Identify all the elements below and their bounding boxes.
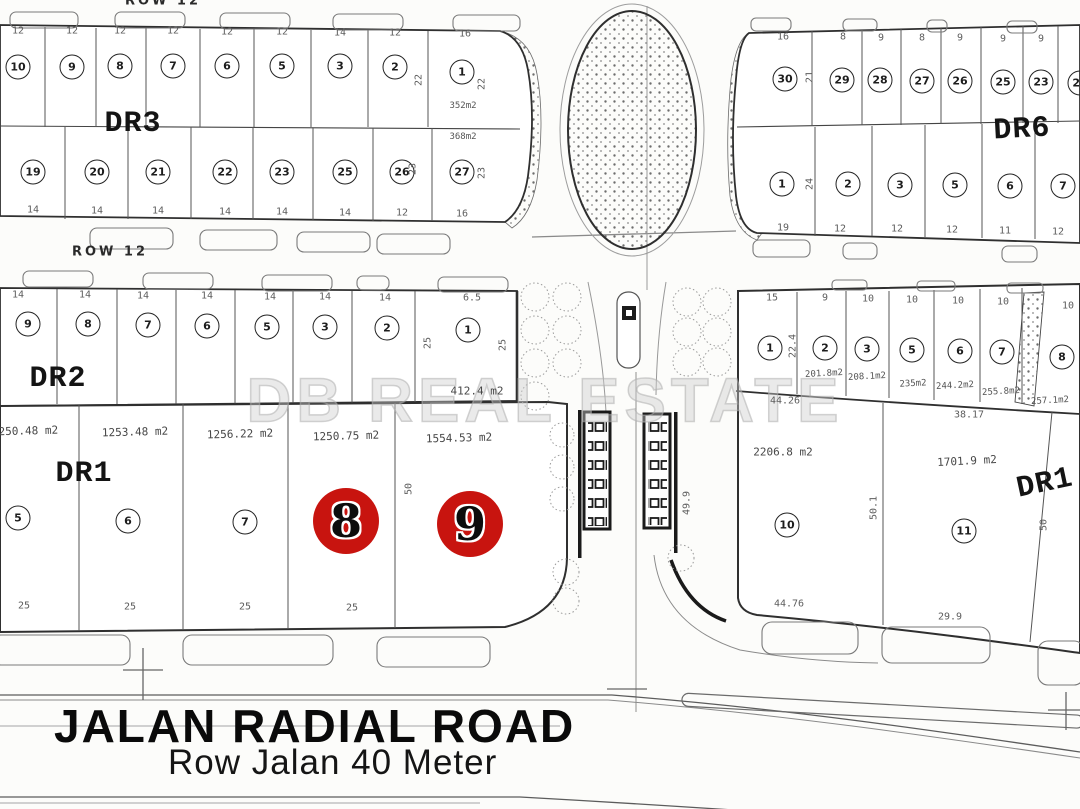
plot-number: 3 — [855, 337, 880, 362]
dimension: 14 — [334, 28, 346, 39]
dimension: 12 — [396, 208, 408, 219]
dimension: 8 — [840, 32, 846, 43]
dimension: 10 — [952, 296, 964, 307]
plot-number: 3 — [313, 315, 338, 340]
plot-number: 8 — [108, 54, 133, 79]
plot-number: 25 — [991, 70, 1016, 95]
dimension: 23 — [408, 163, 419, 175]
plot-number: 1 — [456, 318, 481, 343]
plot-number: 7 — [136, 313, 161, 338]
dimension: 10 — [1062, 301, 1074, 312]
dimension: 16 — [777, 32, 789, 43]
plot-number: 7 — [233, 510, 258, 535]
plot-number: 28 — [868, 68, 893, 93]
dimension: 10 — [862, 294, 874, 305]
plot-number: 6 — [998, 174, 1023, 199]
plot-number: 6 — [948, 339, 973, 364]
dimension: 12 — [834, 224, 846, 235]
plot-number: 23 — [1029, 70, 1054, 95]
dimension: 25 — [423, 337, 434, 349]
dimension: 25 — [346, 603, 358, 614]
plot-area: 1250.48 m2 — [0, 424, 58, 439]
dimension: 25 — [18, 601, 30, 612]
dimension: 50.1 — [869, 496, 880, 520]
block-label-dr2: DR2 — [29, 362, 86, 396]
dimension: 23 — [477, 167, 488, 179]
dimension: 21 — [805, 71, 816, 83]
dimension: 9 — [1000, 34, 1006, 45]
plot-number: 6 — [116, 509, 141, 534]
dimension: 16 — [459, 29, 471, 40]
plot-area: 1256.22 m2 — [207, 427, 274, 442]
dimension: 14 — [137, 291, 149, 302]
plot-area: 368m2 — [449, 132, 476, 142]
plot-number: 10 — [6, 55, 31, 80]
dimension: 38.17 — [954, 410, 984, 421]
plot-number: 8 — [1050, 345, 1075, 370]
dimension: 50 — [1039, 519, 1050, 531]
plot-area: 235m2 — [899, 378, 927, 389]
plot-area: 1253.48 m2 — [102, 425, 169, 440]
plot-number: 23 — [270, 160, 295, 185]
dimension: 12 — [221, 27, 233, 38]
dimension: 12 — [891, 224, 903, 235]
plot-number: 2 — [813, 336, 838, 361]
dimension: 50 — [404, 483, 415, 495]
dimension: 9 — [957, 33, 963, 44]
dimension: 8 — [919, 33, 925, 44]
dimension: 25 — [124, 602, 136, 613]
dimension: 14 — [276, 207, 288, 218]
watermark: DB REAL ESTATE — [246, 366, 843, 437]
dimension: 49.9 — [682, 491, 693, 515]
dimension: 22.4 — [788, 334, 799, 358]
plot-number: 7 — [990, 340, 1015, 365]
dimension: 22 — [477, 78, 488, 90]
plot-number: 8 — [76, 312, 101, 337]
plot-number: 20 — [85, 160, 110, 185]
dimension: 44.76 — [774, 599, 804, 610]
plot-area: 244.2m2 — [936, 380, 974, 392]
plot-number: 9 — [16, 312, 41, 337]
dimension: 12 — [66, 26, 78, 37]
dimension: 10 — [997, 297, 1009, 308]
plot-number: 7 — [161, 54, 186, 79]
dimension: 14 — [27, 205, 39, 216]
plot-number: 30 — [773, 67, 798, 92]
road-row-width: Row Jalan 40 Meter — [168, 743, 497, 783]
dimension: 12 — [276, 27, 288, 38]
plot-number: 10 — [775, 513, 800, 538]
plot-number: 9 — [60, 55, 85, 80]
plot-area: 208.1m2 — [848, 371, 886, 383]
dimension: 10 — [906, 295, 918, 306]
plot-number: 3 — [328, 54, 353, 79]
median-island — [617, 292, 640, 368]
dimension: 14 — [219, 207, 231, 218]
plot-number: 6 — [195, 314, 220, 339]
plot-area: 255.8m2 — [982, 386, 1020, 398]
dimension: 14 — [91, 206, 103, 217]
plot-number: 5 — [900, 338, 925, 363]
plot-number: 29 — [830, 68, 855, 93]
plot-area: 352m2 — [449, 101, 476, 111]
plot-number: 6 — [215, 54, 240, 79]
dimension: 29.9 — [938, 612, 962, 623]
plot-number: 2 — [836, 172, 861, 197]
dimension: 9 — [1038, 34, 1044, 45]
plot-number: 1 — [758, 336, 783, 361]
site-plan: DB REAL ESTATE DR3 ROW 12 ROW 12 10 9 8 … — [0, 0, 1080, 809]
plot-area: 412.4 m2 — [451, 385, 504, 398]
highlight-plot-9[interactable]: 9 — [437, 491, 503, 557]
plot-number: 1 — [450, 60, 475, 85]
plot-number: 5 — [6, 506, 31, 531]
plot-number: 2 — [383, 55, 408, 80]
dimension: 24 — [805, 178, 816, 190]
dimension: 19 — [777, 223, 789, 234]
dimension: 22 — [414, 74, 425, 86]
dimension: 15 — [766, 293, 778, 304]
dimension: 14 — [339, 208, 351, 219]
plot-number: 11 — [952, 519, 977, 544]
block-label-dr6: DR6 — [993, 112, 1052, 149]
plot-number: 26 — [948, 69, 973, 94]
dimension: 12 — [167, 26, 179, 37]
plot-area: 1554.53 m2 — [426, 431, 493, 446]
dimension: 25 — [239, 602, 251, 613]
dimension: 44.26 — [770, 396, 800, 407]
plot-number: 5 — [255, 315, 280, 340]
dimension: 14 — [319, 292, 331, 303]
row-label-top: ROW 12 — [125, 0, 201, 9]
dimension: 12 — [1052, 227, 1064, 238]
dimension: 14 — [12, 290, 24, 301]
dimension: 14 — [152, 206, 164, 217]
dimension: 11 — [999, 226, 1011, 237]
plot-number: 5 — [943, 173, 968, 198]
plot-number: 2 — [375, 316, 400, 341]
dimension: 12 — [946, 225, 958, 236]
plot-number: 5 — [270, 54, 295, 79]
dimension: 14 — [79, 290, 91, 301]
dimension: 16 — [456, 209, 468, 220]
plot-number: 1 — [770, 172, 795, 197]
plot-number: 22 — [213, 160, 238, 185]
plot-area: 2206.8 m2 — [753, 446, 813, 459]
block-label-dr3: DR3 — [104, 107, 161, 141]
dimension: 14 — [201, 291, 213, 302]
dimension: 9 — [878, 33, 884, 44]
dimension: 12 — [114, 26, 126, 37]
plot-number: 21 — [146, 160, 171, 185]
block-label-dr1-left: DR1 — [55, 457, 112, 491]
dimension: 12 — [12, 26, 24, 37]
oval-island — [560, 4, 704, 256]
plot-area: 257.1m2 — [1031, 395, 1069, 407]
dimension: 9 — [822, 293, 828, 304]
row-label-dr3: ROW 12 — [72, 245, 148, 260]
plot-number: 25 — [333, 160, 358, 185]
dimension: 12 — [389, 28, 401, 39]
plot-number: 27 — [450, 160, 475, 185]
plot-number: 19 — [21, 160, 46, 185]
dimension: 14 — [379, 293, 391, 304]
plot-number: 7 — [1051, 174, 1076, 199]
highlight-plot-8[interactable]: 8 — [313, 488, 379, 554]
dimension: 14 — [264, 292, 276, 303]
dimension: 6.5 — [463, 293, 481, 304]
plot-number: 3 — [888, 173, 913, 198]
dimension: 25 — [498, 339, 509, 351]
plot-number: 27 — [910, 69, 935, 94]
plot-area: 1250.75 m2 — [313, 429, 380, 444]
plot-area: 201.8m2 — [805, 368, 843, 380]
